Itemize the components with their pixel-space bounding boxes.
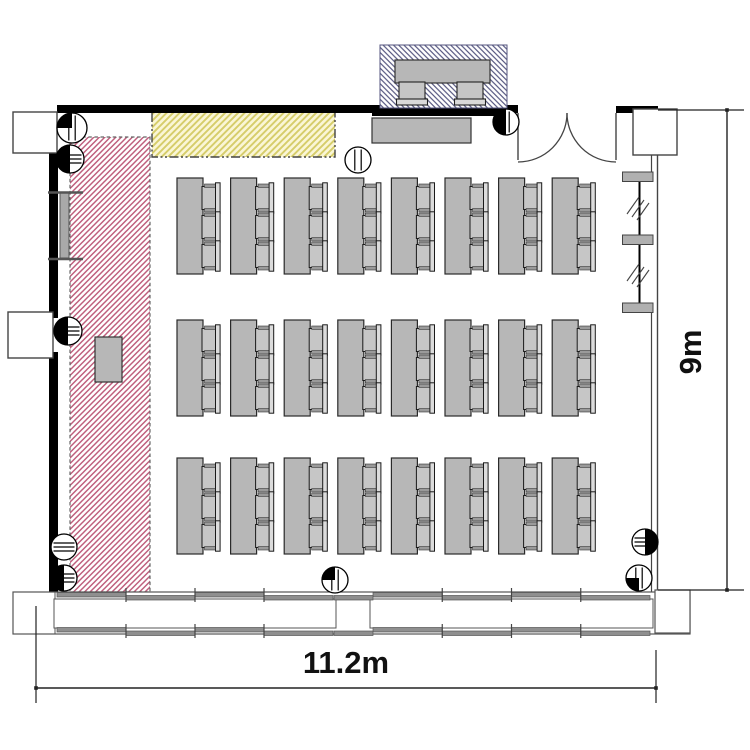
chair-seat [524, 187, 538, 210]
floor-marker-symbol [626, 565, 652, 591]
chair-backrest [484, 383, 489, 413]
chair-seat [256, 329, 270, 352]
table-with-chairs [338, 458, 381, 554]
table-with-chairs [499, 320, 542, 416]
chair-seat [309, 525, 323, 548]
table-with-chairs [391, 178, 434, 274]
chair-backrest [216, 241, 221, 271]
chair-backrest [484, 492, 489, 522]
chair-seat [363, 187, 377, 210]
av-console [372, 118, 471, 143]
chair [256, 354, 274, 384]
window-pane [126, 631, 195, 636]
chair [256, 521, 274, 551]
chair-seat [256, 387, 270, 410]
chair [256, 325, 274, 355]
chair-seat [577, 329, 591, 352]
chair [309, 521, 327, 551]
window-pane [57, 593, 126, 598]
floor-marker-symbol [345, 147, 371, 173]
chair [202, 212, 220, 242]
chair-seat [416, 358, 430, 381]
chair-backrest [537, 241, 542, 271]
window-pane [57, 628, 126, 633]
table-with-chairs [552, 320, 595, 416]
chair [309, 383, 327, 413]
chair [577, 383, 595, 413]
chair-seat [524, 245, 538, 268]
chair [202, 241, 220, 271]
table-with-chairs [231, 320, 274, 416]
chair-seat [309, 187, 323, 210]
table-with-chairs [338, 320, 381, 416]
chair-backrest [537, 383, 542, 413]
chair-seat [202, 358, 216, 381]
chair-seat [309, 496, 323, 519]
chair-seat [363, 358, 377, 381]
chair [202, 521, 220, 551]
chair [363, 521, 381, 551]
chair-backrest [216, 212, 221, 242]
table-with-chairs [284, 320, 327, 416]
chair [256, 383, 274, 413]
table [177, 458, 203, 554]
chair [309, 354, 327, 384]
chair-seat [363, 245, 377, 268]
presenter-chair [455, 82, 486, 105]
window-pane [264, 596, 333, 601]
chair [577, 492, 595, 522]
table [445, 178, 471, 274]
table-with-chairs [177, 320, 220, 416]
chair-seat [577, 387, 591, 410]
table-with-chairs [445, 458, 488, 554]
right-window [623, 172, 654, 313]
chair-backrest [591, 183, 596, 213]
chair [416, 241, 434, 271]
chair-backrest [537, 463, 542, 493]
lectern [95, 337, 122, 382]
chair [309, 325, 327, 355]
chair-backrest [430, 521, 435, 551]
chair-seat [470, 525, 484, 548]
chair-seat [416, 525, 430, 548]
chair-seat [416, 216, 430, 239]
chair [524, 325, 542, 355]
chair-backrest [323, 463, 328, 493]
table [231, 320, 257, 416]
chair-seat [416, 387, 430, 410]
chair-backrest [216, 325, 221, 355]
chair-seat [363, 216, 377, 239]
chair-backrest [269, 383, 274, 413]
chair [577, 212, 595, 242]
table [552, 458, 578, 554]
chair [202, 354, 220, 384]
chair-backrest [269, 183, 274, 213]
chair [202, 463, 220, 493]
chair-seat [470, 329, 484, 352]
chair-seat [363, 467, 377, 490]
chair-backrest [484, 521, 489, 551]
chair [416, 354, 434, 384]
chair [470, 212, 488, 242]
chair [577, 241, 595, 271]
chair-backrest [484, 325, 489, 355]
chair [524, 521, 542, 551]
chair-backrest [323, 383, 328, 413]
table-with-chairs [177, 178, 220, 274]
chair [524, 183, 542, 213]
chair [524, 383, 542, 413]
chair-seat [524, 329, 538, 352]
chair-seat [470, 358, 484, 381]
chair [202, 183, 220, 213]
chair [577, 325, 595, 355]
pilaster-top-left [13, 112, 57, 153]
chair [470, 463, 488, 493]
chair-seat [202, 329, 216, 352]
chair-backrest [484, 212, 489, 242]
chair-backrest [591, 492, 596, 522]
chair [363, 241, 381, 271]
table-with-chairs [338, 178, 381, 274]
window-mullion [623, 235, 654, 245]
window-pane [581, 631, 650, 636]
chair-backrest [484, 463, 489, 493]
presenter-desk [395, 60, 490, 83]
chair-backrest [484, 354, 489, 384]
chair-seat [577, 245, 591, 268]
chair-backrest [376, 463, 381, 493]
door-swing-arc-left [518, 113, 567, 162]
chair-backrest [591, 521, 596, 551]
table-with-chairs [391, 458, 434, 554]
chair-seat [577, 216, 591, 239]
chair [577, 463, 595, 493]
chair-seat [577, 358, 591, 381]
table [552, 178, 578, 274]
double-door [518, 113, 616, 162]
window-frame [370, 599, 653, 628]
chair [309, 212, 327, 242]
table [284, 178, 310, 274]
chair [577, 354, 595, 384]
chair [524, 492, 542, 522]
chair-seat [416, 329, 430, 352]
window-pane [442, 596, 511, 601]
chair-backrest [323, 183, 328, 213]
table [499, 320, 525, 416]
height-dimension-label: 9m [673, 330, 708, 375]
chair-seat [256, 467, 270, 490]
chair-seat [309, 245, 323, 268]
chair [470, 183, 488, 213]
chair-backrest [430, 383, 435, 413]
chair-backrest [430, 354, 435, 384]
pillar-top-right [633, 109, 677, 155]
chair-backrest [537, 212, 542, 242]
chair [416, 492, 434, 522]
chair-backrest [591, 241, 596, 271]
window-frame [54, 599, 336, 628]
table [338, 320, 364, 416]
chair [416, 325, 434, 355]
window-pane [442, 631, 511, 636]
table [391, 458, 417, 554]
chair-backrest [537, 354, 542, 384]
chair-seat [309, 216, 323, 239]
window-pane [373, 628, 442, 633]
floor-marker-symbol [322, 567, 348, 593]
chair-seat [363, 387, 377, 410]
chair [309, 492, 327, 522]
floor-marker-symbol [51, 565, 77, 591]
chair-backrest [376, 492, 381, 522]
chair-seat [256, 216, 270, 239]
chair [202, 325, 220, 355]
window-mullion [623, 303, 654, 313]
chair-seat [202, 245, 216, 268]
chair [309, 183, 327, 213]
chair [363, 354, 381, 384]
chair-backrest [430, 325, 435, 355]
window-pane [512, 628, 581, 633]
chair-backrest [591, 212, 596, 242]
chair-seat [256, 496, 270, 519]
chair-seat [309, 358, 323, 381]
table [177, 178, 203, 274]
table-with-chairs [552, 458, 595, 554]
bottom-window-band [13, 588, 690, 638]
chair [524, 212, 542, 242]
chair-seat [470, 245, 484, 268]
chair-seat [256, 245, 270, 268]
chair-backrest [376, 325, 381, 355]
chair-seat [202, 525, 216, 548]
chair-backrest [216, 383, 221, 413]
chair-backrest [269, 521, 274, 551]
chair-backrest [323, 325, 328, 355]
table-with-chairs [284, 178, 327, 274]
chair [256, 212, 274, 242]
floor-marker-symbol [51, 534, 77, 560]
chair [577, 183, 595, 213]
chair [577, 521, 595, 551]
floor-plan-drawing: 11.2m 9m [0, 0, 750, 750]
table-with-chairs [445, 178, 488, 274]
chair-backrest [323, 212, 328, 242]
chair-backrest [591, 325, 596, 355]
chair-seat [577, 467, 591, 490]
table [499, 458, 525, 554]
chair-seat [416, 245, 430, 268]
chair-backrest [376, 383, 381, 413]
chair [524, 241, 542, 271]
chair-seat [524, 496, 538, 519]
chair-backrest [269, 212, 274, 242]
table-with-chairs [499, 458, 542, 554]
window-mullion [623, 172, 654, 182]
chair-backrest [323, 492, 328, 522]
chair-seat [577, 525, 591, 548]
chair-backrest [269, 492, 274, 522]
chair-backrest [430, 492, 435, 522]
chair-seat [363, 496, 377, 519]
chair-backrest [216, 463, 221, 493]
presenter-chair [397, 82, 428, 105]
table-with-chairs [284, 458, 327, 554]
chair-backrest [376, 183, 381, 213]
chair [256, 463, 274, 493]
chair-seat [524, 467, 538, 490]
whiteboard-zone [152, 113, 335, 157]
chair-backrest [269, 241, 274, 271]
chair-seat [202, 387, 216, 410]
door-swing-arc-right [567, 113, 616, 162]
chair [524, 463, 542, 493]
chair-seat [256, 358, 270, 381]
chair-seat [524, 358, 538, 381]
chair [202, 383, 220, 413]
window-pane [512, 593, 581, 598]
chair-backrest [591, 383, 596, 413]
chair [363, 212, 381, 242]
chair [363, 492, 381, 522]
chair-backrest [484, 241, 489, 271]
chair-backrest [430, 463, 435, 493]
chair-seat [256, 187, 270, 210]
window-pane [195, 593, 264, 598]
chair-seat [309, 329, 323, 352]
chair-backrest [269, 463, 274, 493]
floor-marker-symbol [57, 113, 87, 143]
chair-seat [202, 467, 216, 490]
chair [363, 325, 381, 355]
chair-seat [416, 187, 430, 210]
chair-seat [524, 525, 538, 548]
chair-seat [524, 387, 538, 410]
chair-backrest [376, 241, 381, 271]
chair-backrest [537, 325, 542, 355]
table [231, 458, 257, 554]
table [177, 320, 203, 416]
chair [363, 463, 381, 493]
chair-seat [363, 525, 377, 548]
chair [256, 183, 274, 213]
chair [470, 383, 488, 413]
chair-seat [416, 496, 430, 519]
chair-seat [470, 467, 484, 490]
chair-seat [202, 216, 216, 239]
chair-seat [202, 187, 216, 210]
table-with-chairs [231, 178, 274, 274]
table [231, 178, 257, 274]
window-pane [195, 628, 264, 633]
chair-seat [470, 187, 484, 210]
chair-seat [202, 496, 216, 519]
chair-seat [577, 187, 591, 210]
floor-marker-symbol [54, 317, 82, 345]
chair-seat [363, 329, 377, 352]
chair-backrest [537, 183, 542, 213]
chair-seat [470, 216, 484, 239]
table [391, 178, 417, 274]
table [391, 320, 417, 416]
chair [256, 492, 274, 522]
table-with-chairs [552, 178, 595, 274]
chair [309, 241, 327, 271]
chair-seat [524, 216, 538, 239]
chair [416, 521, 434, 551]
chair-backrest [216, 183, 221, 213]
chair [363, 183, 381, 213]
chair-seat [470, 387, 484, 410]
chair [470, 521, 488, 551]
chair [416, 383, 434, 413]
chair-backrest [430, 183, 435, 213]
table-with-chairs [499, 178, 542, 274]
window-pane [264, 631, 333, 636]
chair-backrest [484, 183, 489, 213]
chair [309, 463, 327, 493]
chair-seat [309, 467, 323, 490]
chair-seat [470, 496, 484, 519]
width-dimension-label: 11.2m [303, 645, 389, 680]
chair-backrest [216, 521, 221, 551]
window-pane [373, 593, 442, 598]
table [284, 320, 310, 416]
chair-seat [577, 496, 591, 519]
chair [524, 354, 542, 384]
chair-backrest [430, 212, 435, 242]
table [499, 178, 525, 274]
chair-backrest [537, 521, 542, 551]
chair-backrest [323, 521, 328, 551]
chair-seat [256, 525, 270, 548]
chair-backrest [591, 463, 596, 493]
table-with-chairs [177, 458, 220, 554]
chair [470, 492, 488, 522]
table [338, 458, 364, 554]
chair [416, 212, 434, 242]
chair [470, 241, 488, 271]
chair-backrest [216, 354, 221, 384]
floor-plan-page: 11.2m 9m [0, 0, 750, 750]
table-with-chairs [391, 320, 434, 416]
chair [202, 492, 220, 522]
table [552, 320, 578, 416]
table-with-chairs [231, 458, 274, 554]
chair-seat [309, 387, 323, 410]
chair-backrest [376, 212, 381, 242]
window-pane [581, 596, 650, 601]
band-right-cap [655, 590, 690, 633]
chair-backrest [430, 241, 435, 271]
floor-marker-symbol [632, 529, 658, 555]
table [284, 458, 310, 554]
chair-backrest [376, 521, 381, 551]
chair-backrest [376, 354, 381, 384]
chair-backrest [323, 354, 328, 384]
chair-backrest [216, 492, 221, 522]
floor-marker-symbol [56, 145, 84, 173]
table [338, 178, 364, 274]
chair [363, 383, 381, 413]
table [445, 458, 471, 554]
chair-backrest [269, 354, 274, 384]
chair [470, 354, 488, 384]
